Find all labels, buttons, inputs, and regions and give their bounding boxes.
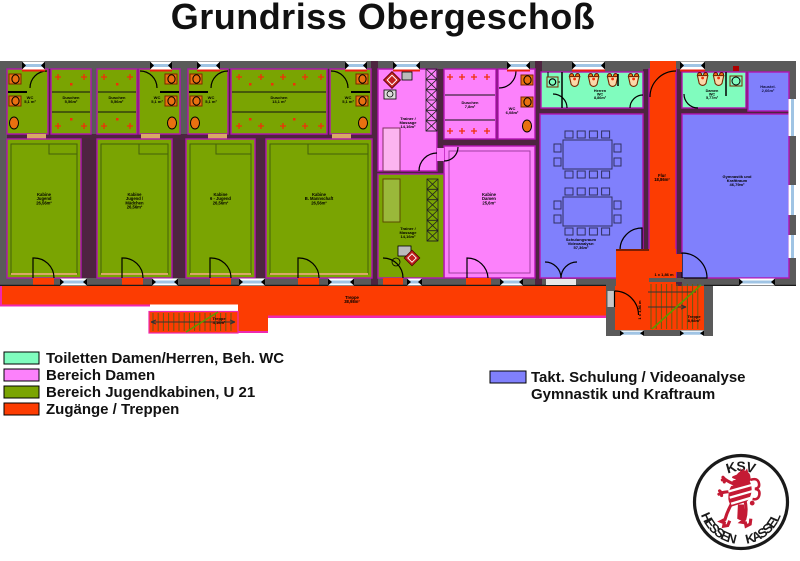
- svg-text:Gymnastik und Kraftraum: Gymnastik und Kraftraum: [531, 386, 715, 403]
- svg-text:Toiletten Damen/Herren, Beh. W: Toiletten Damen/Herren, Beh. WC: [46, 350, 284, 367]
- svg-text:KabineJugend /Mädchen26,56m²: KabineJugend /Mädchen26,56m²: [125, 192, 144, 210]
- svg-text:Haustel.2,66m²: Haustel.2,66m²: [760, 84, 776, 93]
- svg-text:Treppe38,98m²: Treppe38,98m²: [344, 295, 360, 304]
- svg-text:Trainer /Massage14,16m²: Trainer /Massage14,16m²: [400, 226, 418, 239]
- svg-text:Takt. Schulung / Videoanalyse: Takt. Schulung / Videoanalyse: [531, 369, 746, 386]
- svg-text:Bereich Damen: Bereich Damen: [46, 367, 155, 384]
- svg-text:KabineJugend26,56m²: KabineJugend26,56m²: [36, 192, 52, 205]
- svg-text:Duschen13,1 m²: Duschen13,1 m²: [271, 95, 288, 104]
- svg-text:Grundriss Obergeschoß: Grundriss Obergeschoß: [171, 0, 596, 37]
- svg-text:Treppe8,98m²: Treppe8,98m²: [687, 314, 701, 323]
- svg-text:Treppe4,16m²: Treppe4,16m²: [212, 316, 226, 325]
- svg-text:Bereich Jugendkabinen, U 21: Bereich Jugendkabinen, U 21: [46, 384, 255, 401]
- svg-text:Zugänge / Treppen: Zugänge / Treppen: [46, 401, 179, 418]
- svg-text:1 x 1,86 m: 1 x 1,86 m: [654, 272, 674, 277]
- svg-text:KabineDamen25,6m²: KabineDamen25,6m²: [482, 192, 497, 205]
- svg-text:Trainer /Massage14,16m²: Trainer /Massage14,16m²: [400, 116, 418, 129]
